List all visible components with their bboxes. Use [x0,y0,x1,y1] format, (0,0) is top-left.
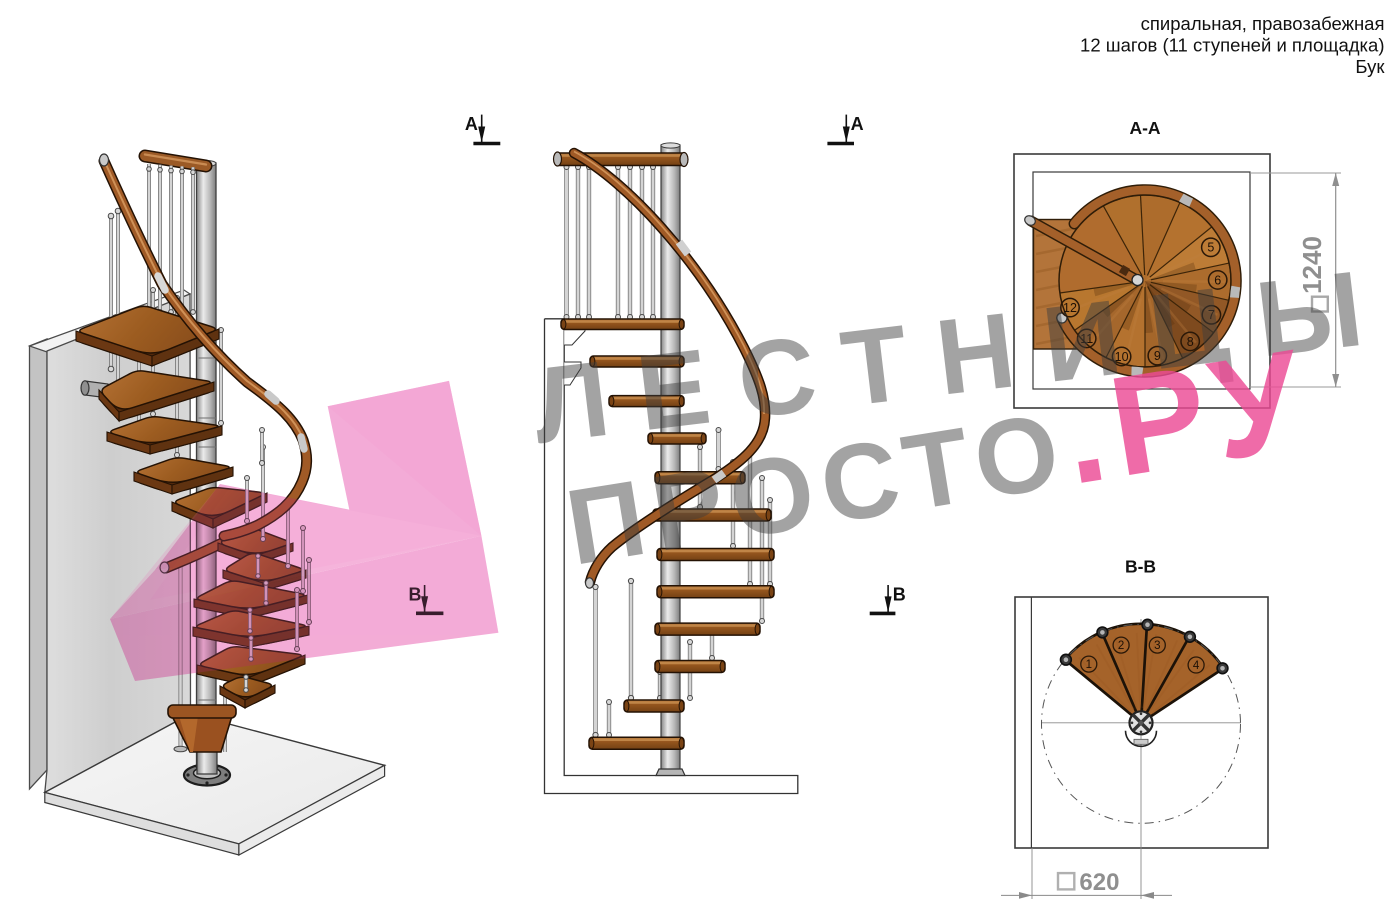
svg-text:B-B: B-B [1125,557,1156,577]
svg-text:3: 3 [1154,640,1160,652]
svg-text:12 шагов (11 ступеней и площад: 12 шагов (11 ступеней и площадка) [1080,35,1384,56]
svg-text:спиральная, правозабежная: спиральная, правозабежная [1141,13,1385,34]
svg-text:B: B [893,585,906,605]
svg-text:Бук: Бук [1355,56,1385,77]
svg-text:A: A [465,114,478,134]
svg-text:4: 4 [1193,660,1200,672]
svg-text:5: 5 [1207,241,1214,255]
svg-text:A: A [851,114,864,134]
svg-text:A-A: A-A [1129,118,1160,138]
svg-text:2: 2 [1118,640,1124,652]
svg-text:1: 1 [1086,659,1092,671]
svg-text:620: 620 [1079,869,1119,896]
